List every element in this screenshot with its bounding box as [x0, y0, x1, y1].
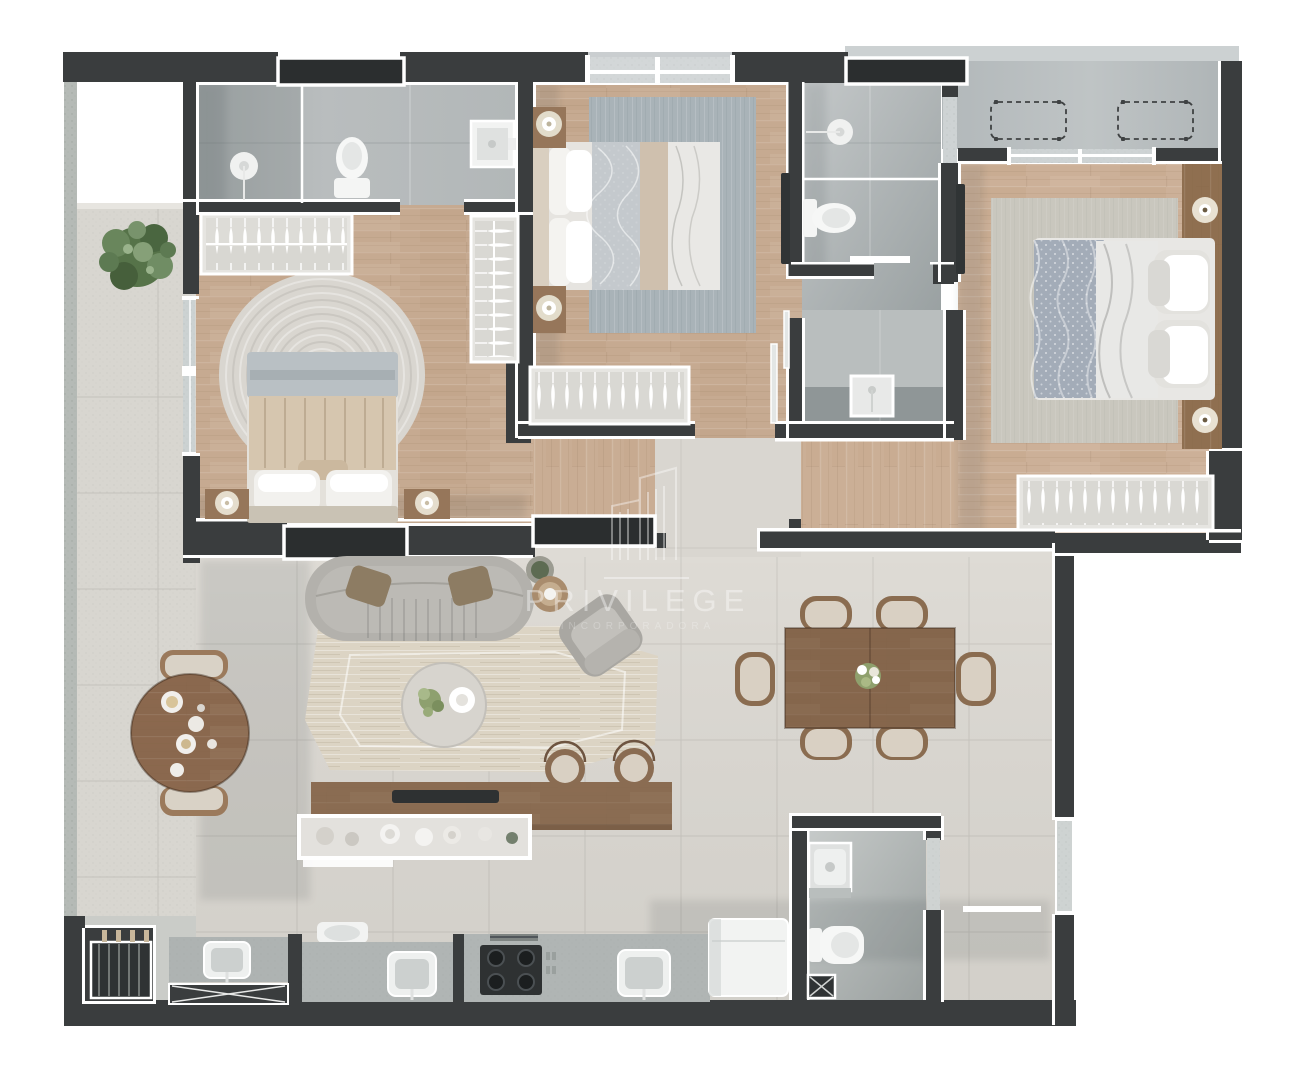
svg-text:PRIVILEGE: PRIVILEGE — [525, 583, 752, 618]
svg-text:INCORPORADORA: INCORPORADORA — [561, 621, 715, 632]
